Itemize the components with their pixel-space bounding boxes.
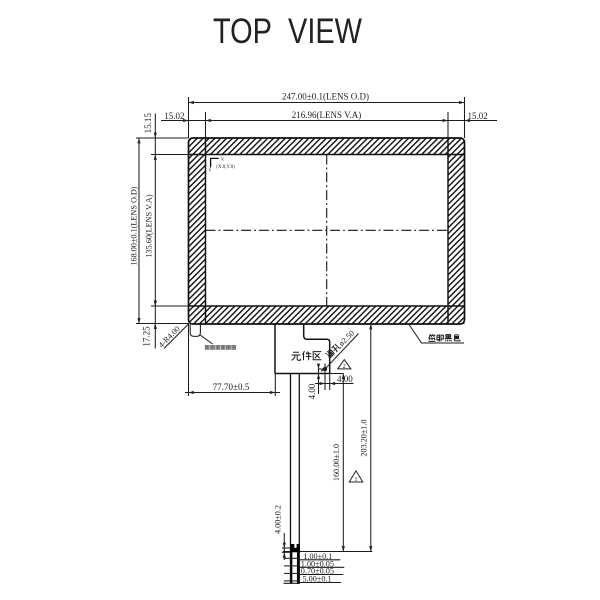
- svg-text:(X:0,Y:0): (X:0,Y:0): [216, 165, 235, 170]
- svg-text:135.60(LENS V.A): 135.60(LENS V.A): [145, 194, 154, 257]
- svg-text:203.20±1.0: 203.20±1.0: [359, 419, 368, 456]
- svg-text:15.02: 15.02: [468, 111, 488, 121]
- svg-text:17.25: 17.25: [142, 326, 152, 347]
- svg-text:4.00: 4.00: [307, 383, 317, 399]
- svg-text:TOP VIEW: TOP VIEW: [213, 12, 362, 51]
- svg-text:2: 2: [343, 364, 346, 370]
- svg-text:216.96(LENS V.A): 216.96(LENS V.A): [292, 110, 361, 120]
- svg-text:247.00±0.1(LENS O.D): 247.00±0.1(LENS O.D): [282, 92, 369, 102]
- svg-text:4.00: 4.00: [337, 374, 353, 384]
- svg-text:15.15: 15.15: [143, 113, 153, 134]
- svg-text:160.00±1.0: 160.00±1.0: [332, 444, 341, 481]
- svg-text:168.00±0.1(LENS O.D): 168.00±0.1(LENS O.D): [130, 186, 139, 265]
- svg-text:5.00±0.1: 5.00±0.1: [303, 574, 332, 583]
- svg-text:1: 1: [355, 477, 358, 483]
- svg-text:4.00±0.2: 4.00±0.2: [274, 505, 283, 534]
- svg-text:77.70±0.5: 77.70±0.5: [213, 382, 250, 392]
- svg-text:15.02: 15.02: [164, 111, 184, 121]
